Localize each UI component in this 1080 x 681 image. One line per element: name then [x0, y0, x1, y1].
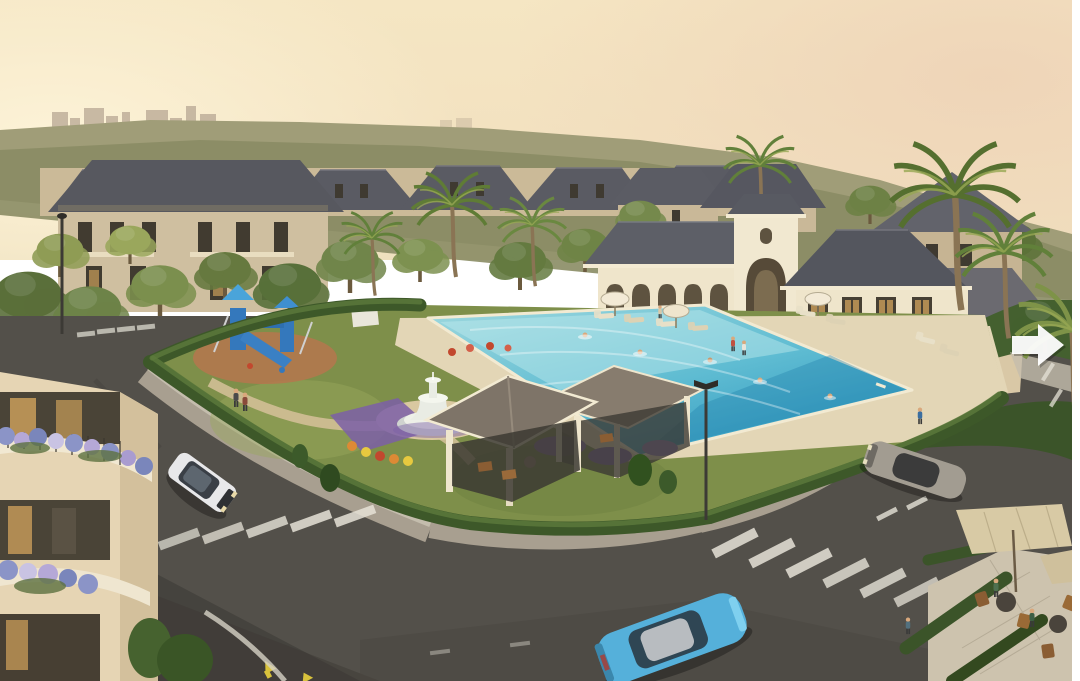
community-render-image — [0, 0, 1080, 681]
carousel-slide — [0, 0, 1080, 681]
frame-strip — [1072, 0, 1080, 681]
